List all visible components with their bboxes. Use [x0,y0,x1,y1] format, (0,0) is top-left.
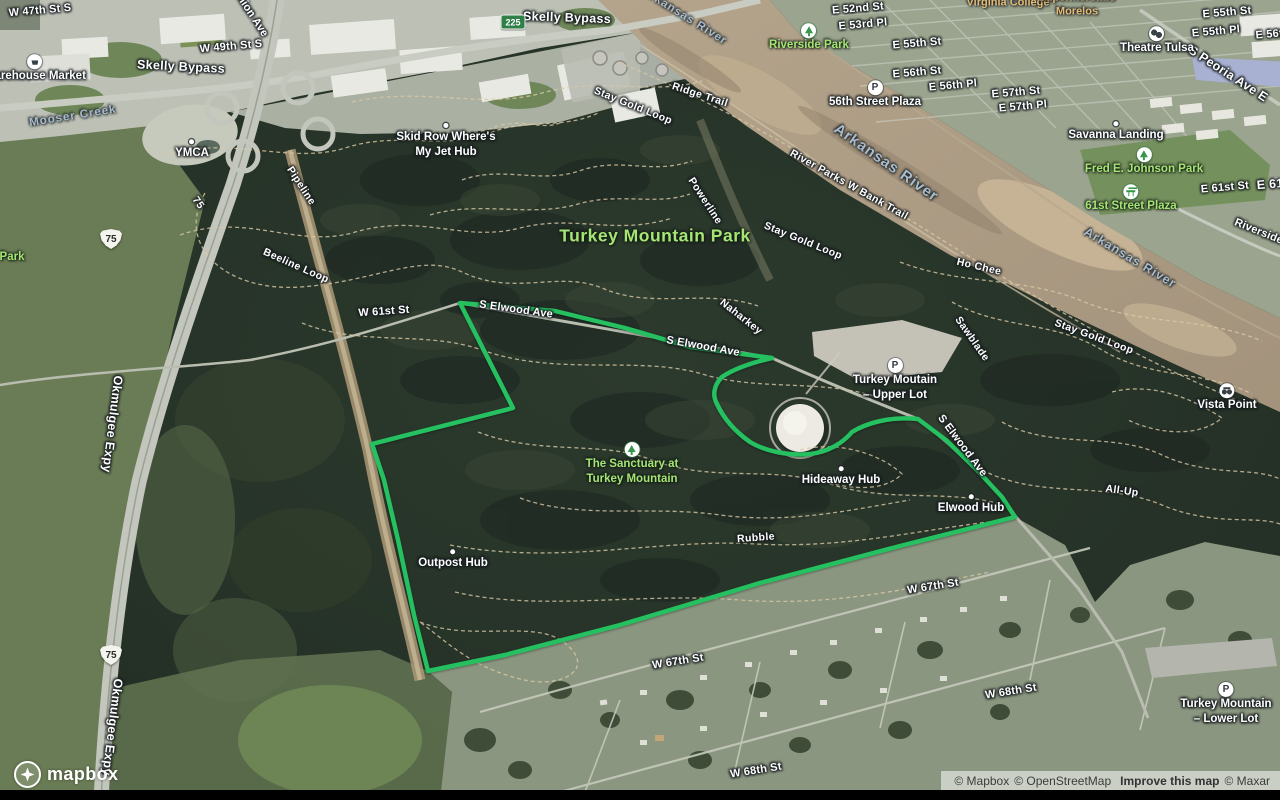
label-w-68th-st-2: W 68th St [984,682,1037,703]
label-e-55th-pl-text-0: E 55th Pl [1191,23,1240,40]
label-vista-point-text-0: Vista Point [1197,399,1256,413]
label-turkey-mountain-park-text-0: Turkey Mountain Park [559,226,751,247]
viewpoint-icon [1220,383,1235,398]
label-powerline-text-0: Powerline [685,175,724,226]
label-s-elwood-ave-1-text-0: S Elwood Ave [478,298,553,321]
label-savanna-landing-text-0: Savanna Landing [1068,129,1163,143]
label-river-parks-w-bank-trail-text-0: River Parks W Bank Trail [788,147,911,222]
label-beeline-loop: Beeline Loop [261,246,331,286]
label-e-57th-st-text-0: E 57th St [991,84,1041,101]
label-supermercado-morelos-text-0: Supermercado [1038,0,1115,5]
label-s-elwood-ave-2: S Elwood Ave [665,334,740,360]
label-skelly-bypass-2-text-0: Skelly Bypass [137,57,226,76]
label-w-67th-st-2: W 67th St [906,577,959,598]
label-s-elwood-ave-3: S Elwood Ave [934,412,989,479]
label-s-elwood-ave-3-text-0: S Elwood Ave [934,412,989,479]
label-e-55th-st-1: E 55th St [892,35,942,52]
label-union-ave-text-0: Union Ave [229,0,270,40]
label-e-57th-pl: E 57th Pl [998,98,1047,115]
label-s-elwood-ave-1: S Elwood Ave [478,298,553,321]
label-e-61st-text-0: E 61st [1256,175,1280,193]
label-ho-chee: Ho Chee [955,256,1002,278]
label-skelly-bypass-2: Skelly Bypass [137,57,226,76]
label-lower-lot: PTurkey Mountain– Lower Lot [1180,682,1271,726]
label-supermercado-morelos-text-1: Morelos [1056,6,1098,19]
label-hideaway-hub: Hideaway Hub [802,466,881,488]
label-mooser-creek: Mooser Creek [28,103,117,130]
park-icon [624,442,639,457]
map-canvas[interactable]: W 47th St SW 49th St SUnion AveSkelly By… [0,0,1280,800]
label-upper-lot-text-1: – Upper Lot [863,389,927,403]
mapbox-logo[interactable]: mapbox [14,761,118,788]
label-e-52nd-st-text-0: E 52nd St [832,0,885,17]
label-all-up: All-Up [1105,483,1140,500]
label-riverside-park: Riverside Park [769,23,849,53]
label-stay-gold-loop-1-text-0: Stay Gold Loop [592,85,674,128]
label-ridge-trail-text-0: Ridge Trail [670,80,729,110]
attribution-mapbox-link[interactable]: © Mapbox [954,774,1009,788]
label-the-sanctuary-text-1: Turkey Mountain [586,473,677,487]
attribution-bar: © Mapbox © OpenStreetMap Improve this ma… [941,771,1280,790]
label-lower-lot-text-0: Turkey Mountain [1180,698,1271,712]
label-the-sanctuary: The Sanctuary atTurkey Mountain [586,442,679,486]
label-e-56th-st-1: E 56th St [892,64,942,81]
label-fred-e-johnson-park-text-0: Fred E. Johnson Park [1085,163,1203,177]
label-naharkey-text-0: Naharkey [717,297,764,338]
label-theatre-tulsa-text-0: Theatre Tulsa [1120,42,1194,56]
map-labels: W 47th St SW 49th St SUnion AveSkelly By… [0,0,1280,800]
label-e-56th-st-1-text-0: E 56th St [892,64,942,81]
label-arkansas-river-3: Arkansas River [1081,225,1179,292]
label-arkansas-river-2: Arkansas River [830,120,941,205]
label-e-56th-st-2-text-0: E 56th St [1255,25,1280,42]
label-arkansas-river-1: Arkansas River [639,0,729,49]
label-arkansas-river-2-text-0: Arkansas River [830,120,941,205]
label-e-61st: E 61st [1256,175,1280,193]
label-mooser-creek-text-0: Mooser Creek [28,103,117,130]
label-okmulgee-expy-1: Okmulgee Expy [99,375,126,474]
label-e-56th-st-2: E 56th St [1255,25,1280,42]
park-icon [1136,147,1151,162]
picnic-icon [1123,184,1138,199]
label-river-parks-w-bank-trail: River Parks W Bank Trail [788,147,911,222]
label-w-68th-st-1: W 68th St [729,761,782,782]
label-w-67th-st-2-text-0: W 67th St [906,577,959,598]
shield-us-75-south-text-0: 75 [100,645,122,665]
mapbox-logo-text: mapbox [47,764,118,785]
label-w-47th-st-s: W 47th St S [8,2,72,20]
label-pipeline-text-0: Pipeline [284,164,318,207]
label-warehouse-market: Warehouse Market [0,54,86,84]
label-arkansas-river-1-text-0: Arkansas River [639,0,729,49]
dot-icon [969,494,974,499]
label-savanna-landing: Savanna Landing [1068,121,1163,143]
label-lower-lot-text-1: – Lower Lot [1194,713,1259,727]
label-arkansas-river-3-text-0: Arkansas River [1081,225,1179,292]
shield-us-75-south: 75 [100,645,122,665]
label-61st-street-plaza: 61st Street Plaza [1085,184,1176,214]
label-park-partial-text-0: Park [0,251,24,265]
dot-icon [190,139,195,144]
label-okmulgee-expy-1-text-0: Okmulgee Expy [99,375,126,474]
label-56th-street-plaza: P56th Street Plaza [829,80,921,110]
attribution-osm-link[interactable]: © OpenStreetMap [1014,774,1111,788]
label-s-elwood-ave-2-text-0: S Elwood Ave [665,334,740,360]
label-e-56th-pl: E 56th Pl [928,77,977,94]
label-skid-row-hub-text-1: My Jet Hub [415,146,476,160]
label-w-61st-st-text-0: W 61st St [358,304,410,321]
label-sawblade: Sawblade [952,314,992,363]
label-skelly-bypass-1: Skelly Bypass [523,9,611,27]
label-virginia-college: Virginia College [967,0,1050,9]
label-75-trail-text-0: 75 [189,194,206,211]
label-e-61st-st-text-0: E 61st St [1200,179,1249,196]
label-elwood-hub-text-0: Elwood Hub [938,502,1004,516]
label-e-53rd-pl-text-0: E 53rd Pl [838,16,888,33]
shield-ok-225-text-0: 225 [501,15,526,30]
label-pipeline: Pipeline [284,164,318,207]
attribution-maxar-link[interactable]: © Maxar [1224,774,1270,788]
mapbox-logo-icon [14,761,41,788]
label-upper-lot: PTurkey Moutain– Upper Lot [853,358,937,402]
label-e-61st-st: E 61st St [1200,179,1249,196]
label-stay-gold-loop-2-text-0: Stay Gold Loop [762,220,844,263]
label-skid-row-hub: Skid Row Where'sMy Jet Hub [396,123,495,159]
theater-icon [1149,26,1164,41]
label-hideaway-hub-text-0: Hideaway Hub [802,474,881,488]
label-riverside-park-text-0: Riverside Park [769,39,849,53]
label-75-trail: 75 [189,194,206,211]
label-outpost-hub-text-0: Outpost Hub [418,557,488,571]
label-e-52nd-st: E 52nd St [832,0,885,17]
label-ho-chee-text-0: Ho Chee [955,256,1002,278]
label-virginia-college-text-0: Virginia College [967,0,1050,9]
label-the-sanctuary-text-0: The Sanctuary at [586,458,679,472]
dot-icon [443,123,448,128]
label-warehouse-market-text-0: Warehouse Market [0,70,86,84]
label-w-61st-st: W 61st St [358,304,410,321]
label-supermercado-morelos: SupermercadoMorelos [1038,0,1115,18]
label-elwood-hub: Elwood Hub [938,494,1004,516]
label-e-55th-st-2-text-0: E 55th St [1202,4,1252,21]
parking-icon: P [867,80,882,95]
label-sawblade-text-0: Sawblade [952,314,992,363]
label-e-55th-pl: E 55th Pl [1191,23,1240,40]
label-union-ave: Union Ave [229,0,270,40]
label-rubble: Rubble [737,531,776,546]
bottom-black-bar [0,790,1280,800]
label-stay-gold-loop-3-text-0: Stay Gold Loop [1053,317,1135,357]
label-ridge-trail: Ridge Trail [670,80,729,110]
label-all-up-text-0: All-Up [1105,483,1140,500]
label-w-47th-st-s-text-0: W 47th St S [8,2,72,20]
label-theatre-tulsa: Theatre Tulsa [1120,26,1194,56]
market-icon [27,54,42,69]
label-61st-street-plaza-text-0: 61st Street Plaza [1085,200,1176,214]
shield-ok-225: 225 [501,15,526,30]
label-stay-gold-loop-3: Stay Gold Loop [1053,317,1135,357]
label-s-peoria-ave-e: S Peoria Ave E [1186,43,1271,105]
label-e-57th-pl-text-0: E 57th Pl [998,98,1047,115]
label-w-49th-st-s: W 49th St S [199,38,263,56]
label-ymca-text-0: YMCA [175,147,209,161]
label-s-peoria-ave-e-text-0: S Peoria Ave E [1186,43,1271,105]
label-ymca: YMCA [175,139,209,161]
label-e-56th-pl-text-0: E 56th Pl [928,77,977,94]
label-upper-lot-text-0: Turkey Moutain [853,374,937,388]
parking-icon: P [887,358,902,373]
label-riverside-dr-text-0: Riverside Dr [1232,216,1280,253]
label-56th-street-plaza-text-0: 56th Street Plaza [829,96,921,110]
label-stay-gold-loop-1: Stay Gold Loop [592,85,674,128]
label-e-55th-st-2: E 55th St [1202,4,1252,21]
label-w-49th-st-s-text-0: W 49th St S [199,38,263,56]
label-w-68th-st-1-text-0: W 68th St [729,761,782,782]
label-e-57th-st: E 57th St [991,84,1041,101]
label-rubble-text-0: Rubble [737,531,776,546]
label-park-partial: Park [0,251,24,265]
label-fred-e-johnson-park: Fred E. Johnson Park [1085,147,1203,177]
label-turkey-mountain-park: Turkey Mountain Park [559,226,751,247]
label-naharkey: Naharkey [717,297,764,338]
label-powerline: Powerline [685,175,724,226]
improve-this-map-link[interactable]: Improve this map [1120,774,1219,788]
park-icon [801,23,816,38]
dot-icon [838,466,843,471]
label-stay-gold-loop-2: Stay Gold Loop [762,220,844,263]
label-beeline-loop-text-0: Beeline Loop [261,246,331,286]
dot-icon [1114,121,1119,126]
shield-us-75-north: 75 [100,229,122,249]
label-skelly-bypass-1-text-0: Skelly Bypass [523,9,611,27]
label-w-68th-st-2-text-0: W 68th St [984,682,1037,703]
label-vista-point: Vista Point [1197,383,1256,413]
label-riverside-dr: Riverside Dr [1232,216,1280,253]
label-w-67th-st-1-text-0: W 67th St [651,652,704,673]
parking-icon: P [1219,682,1234,697]
dot-icon [451,549,456,554]
label-e-55th-st-1-text-0: E 55th St [892,35,942,52]
shield-us-75-north-text-0: 75 [100,229,122,249]
label-w-67th-st-1: W 67th St [651,652,704,673]
label-skid-row-hub-text-0: Skid Row Where's [396,131,495,145]
label-e-53rd-pl: E 53rd Pl [838,16,888,33]
label-outpost-hub: Outpost Hub [418,549,488,571]
